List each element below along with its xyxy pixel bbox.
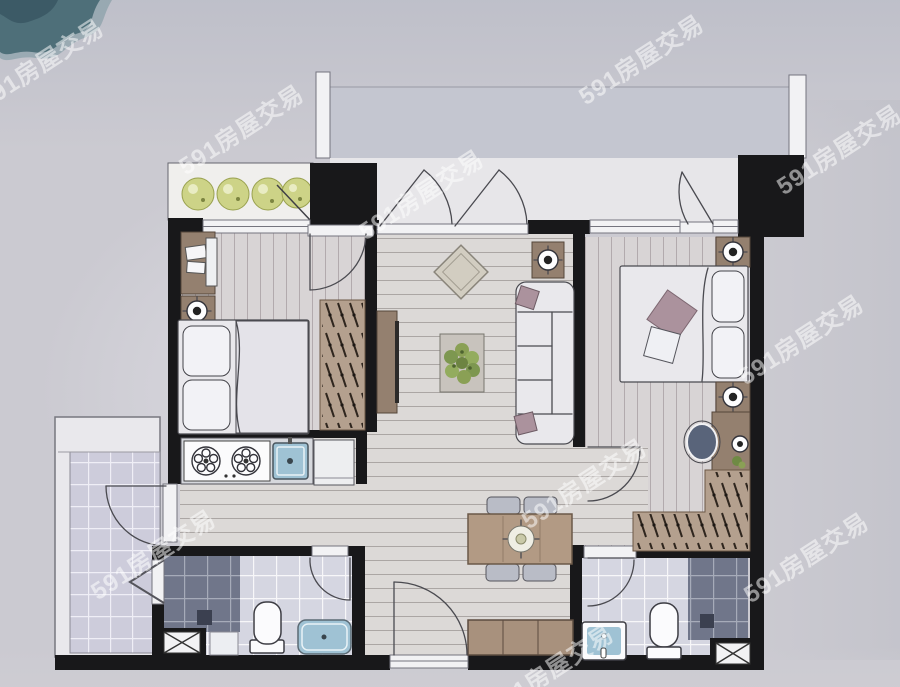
bathtub: [298, 620, 351, 654]
refrigerator: [314, 440, 354, 485]
bathroom-left-doorway: [312, 546, 348, 556]
window-sill-right: [713, 220, 738, 233]
bed-left: [178, 320, 309, 434]
burner-icon: [192, 447, 220, 475]
kitchen: [181, 437, 354, 485]
toilet: [250, 602, 284, 653]
chair: [486, 564, 519, 581]
throw-pillow: [514, 412, 537, 435]
wall-block-top-right: [738, 155, 804, 237]
shower-step: [210, 632, 238, 655]
coffee-table-with-plant: [440, 334, 484, 392]
bedroom-left-door-threshold: [308, 225, 373, 236]
wall-block-top-left: [310, 163, 377, 225]
bathroom-right-doorway: [584, 546, 636, 558]
utility-shaft: [158, 628, 206, 657]
chair: [524, 497, 557, 514]
chair: [487, 497, 520, 514]
front-balcony-floor: [330, 158, 790, 226]
terrace: [316, 72, 806, 158]
window-bedroom-left: [203, 220, 310, 233]
chair: [523, 564, 556, 581]
terrace-pillar-left: [316, 72, 330, 158]
burner-icon: [232, 447, 260, 475]
floor-plan-photo: 591房屋交易 591房屋交易 591房屋交易 591房屋交易 591房屋交易 …: [0, 0, 900, 687]
sofa: [514, 282, 574, 444]
terrace-pillar-right: [789, 75, 806, 158]
planter-box: [168, 163, 313, 221]
utility-shaft: [710, 638, 756, 668]
wash-basin: [582, 622, 626, 660]
floor-plan-drawing: [0, 0, 900, 687]
french-door-threshold: [377, 224, 528, 234]
window-bedroom-right: [590, 220, 680, 233]
bathroom-right-shower: [688, 558, 748, 640]
wardrobe-left: [320, 300, 365, 430]
tv-icon: [395, 321, 399, 403]
toilet: [647, 603, 681, 659]
watercolor-blob: [0, 0, 112, 60]
entrance-threshold: [390, 655, 468, 668]
kitchen-balcony-doorway: [163, 484, 177, 542]
kitchen-sink: [273, 437, 308, 479]
drain-icon: [197, 610, 212, 625]
bed-right: [620, 266, 748, 382]
drain-icon: [700, 614, 714, 628]
oval-basin: [687, 424, 717, 460]
balcony-door-threshold: [680, 222, 713, 233]
rear-balcony: [55, 417, 160, 657]
shoe-cabinet: [468, 620, 573, 655]
tv-cabinet: [377, 311, 397, 413]
